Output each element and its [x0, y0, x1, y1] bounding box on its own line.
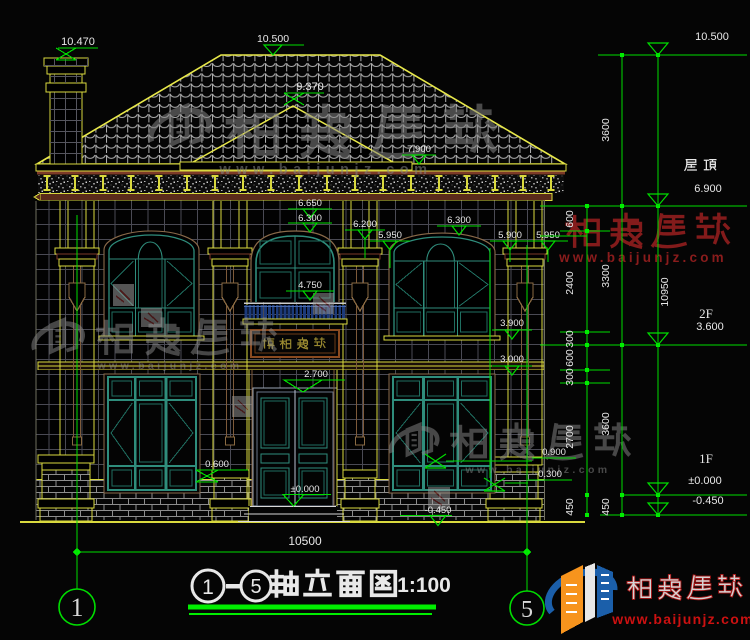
svg-text:10.500: 10.500: [257, 33, 289, 45]
svg-text:10.500: 10.500: [695, 31, 729, 43]
svg-text:±0.000: ±0.000: [688, 475, 722, 487]
svg-text:0.300: 0.300: [538, 469, 562, 480]
svg-text:1F: 1F: [699, 451, 713, 466]
svg-text:600: 600: [564, 349, 576, 367]
svg-text:3600: 3600: [600, 412, 612, 436]
svg-text:www.baijunjz.com: www.baijunjz.com: [558, 250, 727, 265]
svg-text:www.baijunjz.com: www.baijunjz.com: [218, 162, 432, 178]
svg-text:2700: 2700: [564, 425, 576, 449]
svg-text:6.300: 6.300: [298, 213, 322, 224]
svg-text:6.650: 6.650: [298, 198, 322, 209]
svg-text:10500: 10500: [288, 534, 322, 548]
svg-text:-0.450: -0.450: [692, 495, 723, 507]
svg-text:0.600: 0.600: [205, 459, 229, 470]
svg-text:2400: 2400: [564, 271, 576, 295]
svg-text:6.900: 6.900: [694, 183, 722, 195]
svg-text:3600: 3600: [600, 118, 612, 142]
svg-text:1: 1: [202, 576, 214, 599]
svg-text:2.700: 2.700: [304, 369, 328, 380]
svg-text:6.300: 6.300: [447, 215, 471, 226]
svg-text:9.370: 9.370: [296, 81, 324, 93]
svg-text:4.750: 4.750: [298, 280, 322, 291]
svg-text:±0.000: ±0.000: [291, 484, 320, 495]
svg-text:10.470: 10.470: [61, 36, 95, 48]
svg-text:10950: 10950: [659, 277, 671, 306]
svg-text:2F: 2F: [699, 306, 713, 321]
svg-text:3.600: 3.600: [696, 321, 724, 333]
svg-text:450: 450: [600, 498, 612, 516]
svg-text:5: 5: [521, 597, 533, 623]
svg-text:7.900: 7.900: [407, 144, 431, 155]
svg-text:600: 600: [564, 210, 576, 228]
svg-text:450: 450: [564, 498, 576, 516]
svg-text:3300: 3300: [600, 264, 612, 288]
svg-text:3.000: 3.000: [500, 354, 524, 365]
svg-text:3.900: 3.900: [500, 318, 524, 329]
svg-text:300: 300: [564, 368, 576, 386]
svg-text:www.baijunjz.com: www.baijunjz.com: [96, 360, 242, 372]
svg-text:300: 300: [564, 330, 576, 348]
svg-text:5.900: 5.900: [498, 230, 522, 241]
svg-text:www.baijunjz.com: www.baijunjz.com: [611, 611, 750, 627]
svg-text:1: 1: [71, 593, 84, 622]
svg-text:5.950: 5.950: [378, 230, 402, 241]
svg-text:0.900: 0.900: [542, 447, 566, 458]
svg-text:-0.450: -0.450: [425, 505, 452, 516]
svg-text:1:100: 1:100: [397, 574, 451, 597]
svg-text:6.200: 6.200: [353, 219, 377, 230]
svg-text:5: 5: [250, 576, 261, 598]
